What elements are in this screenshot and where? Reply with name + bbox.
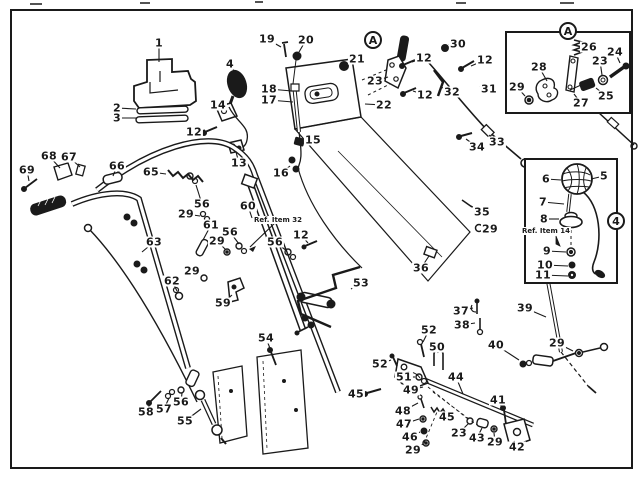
part-callout-39: 39 [516, 303, 534, 314]
part-callout-36: 36 [412, 263, 430, 274]
part-callout-12: 12 [476, 55, 494, 66]
part-callout-52: 52 [371, 359, 389, 370]
part-callout-13: 13 [230, 158, 248, 169]
part-callout-22: 22 [375, 100, 393, 111]
part-callout-46: 46 [401, 432, 419, 443]
part-callout-45: 45 [347, 389, 365, 400]
part-callout-27: 27 [572, 98, 590, 109]
part-callout-29: 29 [548, 338, 566, 349]
part-callout-12: 12 [292, 230, 310, 241]
parts-diagram-page: 1234141213192018171516656667686956296061… [0, 0, 640, 480]
part-callout-58: 58 [137, 407, 155, 418]
part-callout-44: 44 [447, 372, 465, 383]
part-callout-21: 21 [348, 54, 366, 65]
part-callout-59: 59 [214, 298, 232, 309]
part-callout-29: 29 [208, 236, 226, 247]
part-callout-5: 5 [599, 171, 609, 182]
part-callout-50: 50 [428, 342, 446, 353]
part-callout-56: 56 [266, 237, 284, 248]
part-callout-14: 14 [209, 100, 227, 111]
part-callout-25: 25 [597, 91, 615, 102]
part-callout-30: 30 [449, 39, 467, 50]
part-callout-56: 56 [172, 397, 190, 408]
part-callout-41: 41 [489, 395, 507, 406]
part-callout-35: 35 [473, 207, 491, 218]
part-callout-37: 37 [452, 306, 470, 317]
part-callout-54: 54 [257, 333, 275, 344]
part-callout-48: 48 [394, 406, 412, 417]
part-callout-8: 8 [539, 214, 549, 225]
part-callout-62: 62 [163, 276, 181, 287]
part-callout-63: 63 [145, 237, 163, 248]
part-callout-56: 56 [193, 199, 211, 210]
part-callout-68: 68 [40, 151, 58, 162]
part-callout-34: 34 [468, 142, 486, 153]
part-callout-49: 49 [402, 385, 420, 396]
part-callout-12: 12 [185, 127, 203, 138]
part-callout-66: 66 [108, 161, 126, 172]
inset-marker-a: A [559, 22, 577, 40]
part-callout-29: 29 [177, 209, 195, 220]
reference-note: Ref. Item 14 [521, 227, 571, 235]
part-callout-23: 23 [450, 428, 468, 439]
part-callout-69: 69 [18, 165, 36, 176]
part-callout-32: 32 [443, 87, 461, 98]
part-callout-53: 53 [352, 278, 370, 289]
part-callout-60: 60 [239, 201, 257, 212]
part-callout-55: 55 [176, 416, 194, 427]
part-callout-29: 29 [481, 224, 499, 235]
part-callout-29: 29 [508, 82, 526, 93]
reference-note: Ref. Item 32 [253, 216, 303, 224]
part-callout-51: 51 [395, 372, 413, 383]
part-callout-7: 7 [538, 197, 548, 208]
part-callout-20: 20 [297, 35, 315, 46]
part-callout-12: 12 [416, 90, 434, 101]
part-callout-3: 3 [112, 113, 122, 124]
part-callout-1: 1 [154, 38, 164, 49]
part-callout-23: 23 [366, 76, 384, 87]
part-callout-6: 6 [541, 174, 551, 185]
part-callout-19: 19 [258, 34, 276, 45]
part-callout-57: 57 [155, 404, 173, 415]
part-callout-38: 38 [453, 320, 471, 331]
part-callout-67: 67 [60, 152, 78, 163]
callout-labels: 1234141213192018171516656667686956296061… [0, 0, 640, 480]
part-callout-45: 45 [438, 412, 456, 423]
part-callout-16: 16 [272, 168, 290, 179]
part-callout-29: 29 [404, 445, 422, 456]
part-callout-11: 11 [534, 270, 552, 281]
part-callout-4: 4 [225, 59, 235, 70]
inset-marker-4: 4 [607, 212, 625, 230]
part-callout-26: 26 [580, 42, 598, 53]
part-callout-28: 28 [530, 62, 548, 73]
part-callout-42: 42 [508, 442, 526, 453]
part-callout-17: 17 [260, 95, 278, 106]
part-callout-23: 23 [591, 56, 609, 67]
part-callout-40: 40 [487, 340, 505, 351]
part-callout-33: 33 [488, 137, 506, 148]
inset-marker-a: A [364, 31, 382, 49]
part-callout-15: 15 [304, 135, 322, 146]
part-callout-65: 65 [142, 167, 160, 178]
part-callout-47: 47 [395, 419, 413, 430]
part-callout-9: 9 [542, 246, 552, 257]
part-callout-43: 43 [468, 433, 486, 444]
part-callout-12: 12 [415, 53, 433, 64]
part-callout-29: 29 [183, 266, 201, 277]
part-callout-31: 31 [480, 84, 498, 95]
part-callout-52: 52 [420, 325, 438, 336]
part-callout-61: 61 [202, 220, 220, 231]
part-callout-29: 29 [486, 437, 504, 448]
